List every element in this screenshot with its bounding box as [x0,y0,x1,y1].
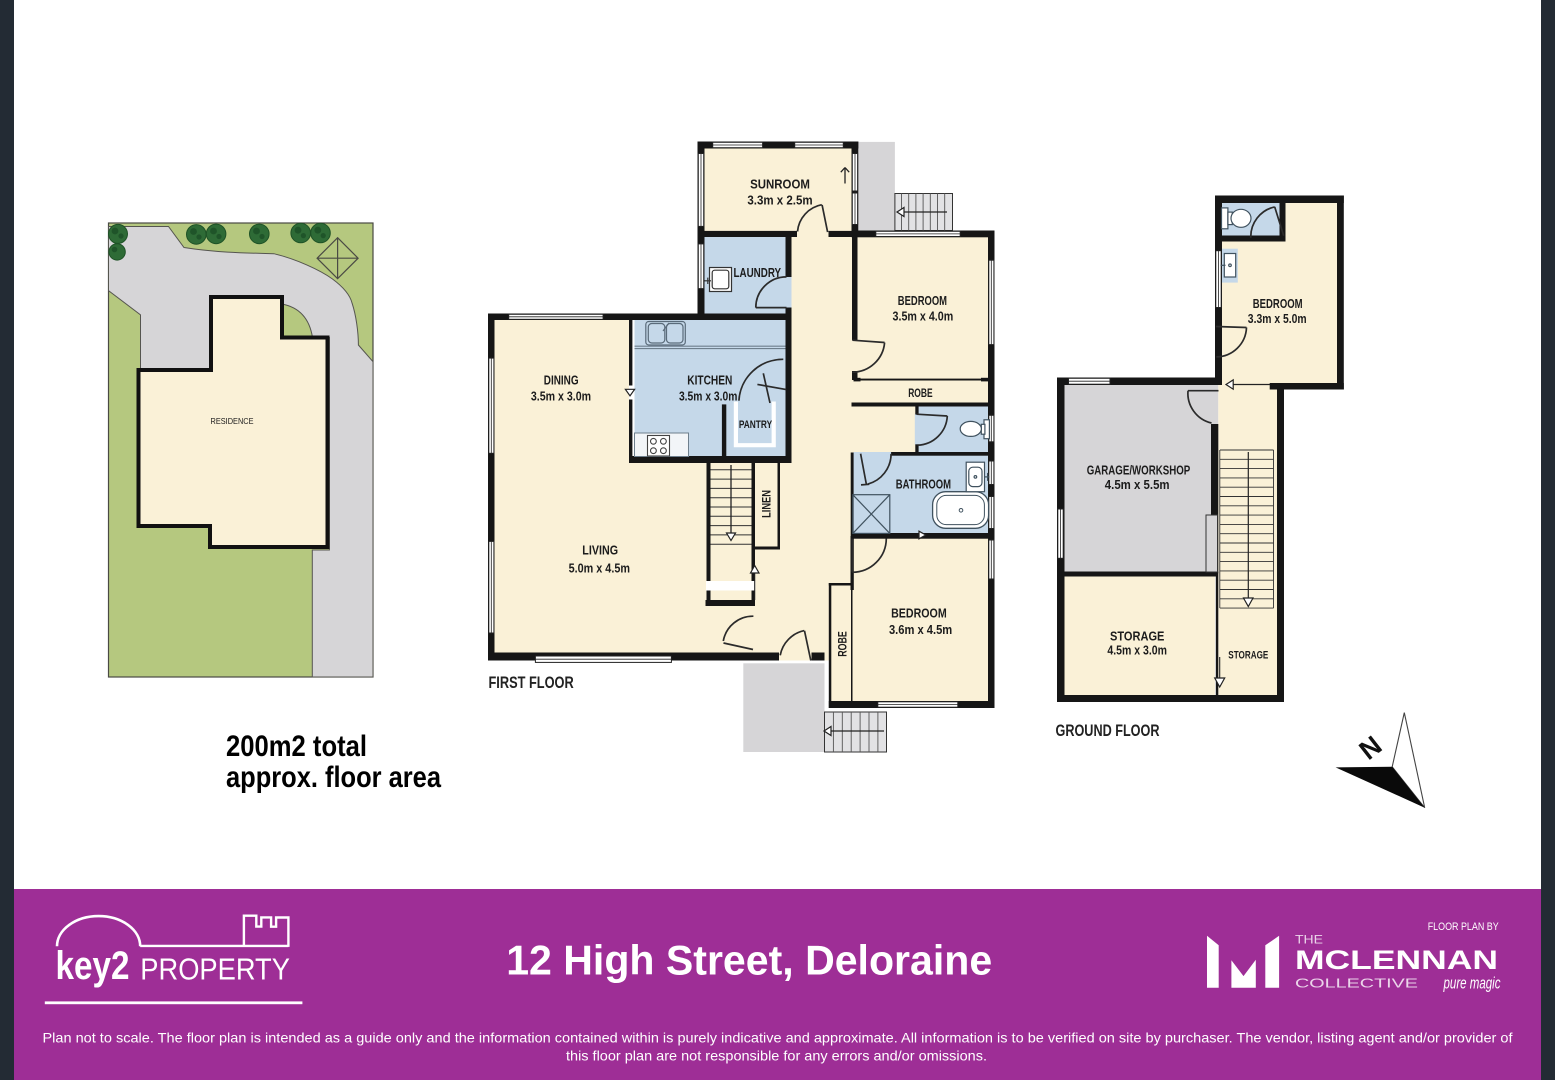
svg-text:GROUND FLOOR: GROUND FLOOR [1056,721,1160,740]
svg-text:BATHROOM: BATHROOM [896,478,951,492]
svg-text:5.0m x 4.5m: 5.0m x 4.5m [569,562,630,576]
svg-text:DINING: DINING [544,374,579,388]
svg-text:KITCHEN: KITCHEN [687,374,732,388]
svg-text:12 High Street, Deloraine: 12 High Street, Deloraine [506,937,992,984]
svg-text:LIVING: LIVING [582,543,618,557]
svg-text:COLLECTIVE: COLLECTIVE [1295,976,1418,990]
svg-text:200m2 total: 200m2 total [226,730,367,763]
svg-text:3.5m x 3.0m: 3.5m x 3.0m [679,390,738,404]
svg-text:key2: key2 [56,944,130,988]
svg-text:BEDROOM: BEDROOM [891,606,947,621]
svg-text:BEDROOM: BEDROOM [898,293,947,308]
svg-text:3.3m x 2.5m: 3.3m x 2.5m [747,193,812,208]
svg-text:MCLENNAN: MCLENNAN [1295,945,1498,975]
svg-text:STORAGE: STORAGE [1110,629,1165,644]
svg-text:FIRST FLOOR: FIRST FLOOR [489,673,574,692]
svg-text:this floor plan are not respon: this floor plan are not responsible for … [566,1049,987,1064]
svg-text:4.5m x 5.5m: 4.5m x 5.5m [1105,477,1170,492]
svg-text:3.5m x 4.0m: 3.5m x 4.0m [893,308,954,323]
svg-text:LINEN: LINEN [762,490,774,518]
svg-text:SUNROOM: SUNROOM [750,177,810,192]
svg-text:PANTRY: PANTRY [739,419,773,431]
svg-text:STORAGE: STORAGE [1228,650,1268,662]
svg-text:PROPERTY: PROPERTY [140,952,290,986]
svg-text:3.5m x 3.0m: 3.5m x 3.0m [531,390,591,404]
svg-text:BEDROOM: BEDROOM [1253,296,1303,311]
svg-text:3.3m x 5.0m: 3.3m x 5.0m [1248,311,1307,326]
svg-text:RESIDENCE: RESIDENCE [211,416,254,426]
svg-text:3.6m x 4.5m: 3.6m x 4.5m [889,622,952,637]
svg-text:ROBE: ROBE [908,386,932,400]
svg-text:Plan not to scale. The floor p: Plan not to scale. The floor plan is int… [43,1031,1513,1046]
svg-text:pure magic: pure magic [1443,974,1501,993]
svg-text:FLOOR PLAN BY: FLOOR PLAN BY [1428,921,1500,933]
svg-text:ROBE: ROBE [838,631,850,657]
svg-text:GARAGE/WORKSHOP: GARAGE/WORKSHOP [1087,463,1191,478]
svg-text:LAUNDRY: LAUNDRY [734,266,782,280]
svg-text:4.5m x 3.0m: 4.5m x 3.0m [1107,643,1167,658]
svg-text:approx. floor area: approx. floor area [226,761,441,794]
